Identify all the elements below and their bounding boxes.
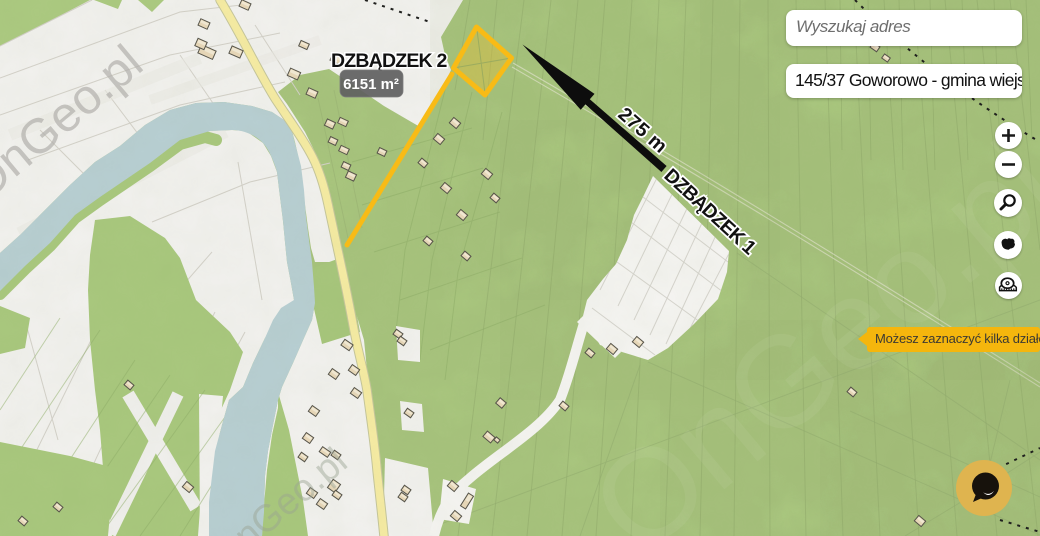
svg-text:DZBĄDZEK 2: DZBĄDZEK 2	[331, 50, 447, 72]
svg-text:6151 m²: 6151 m²	[343, 76, 399, 93]
